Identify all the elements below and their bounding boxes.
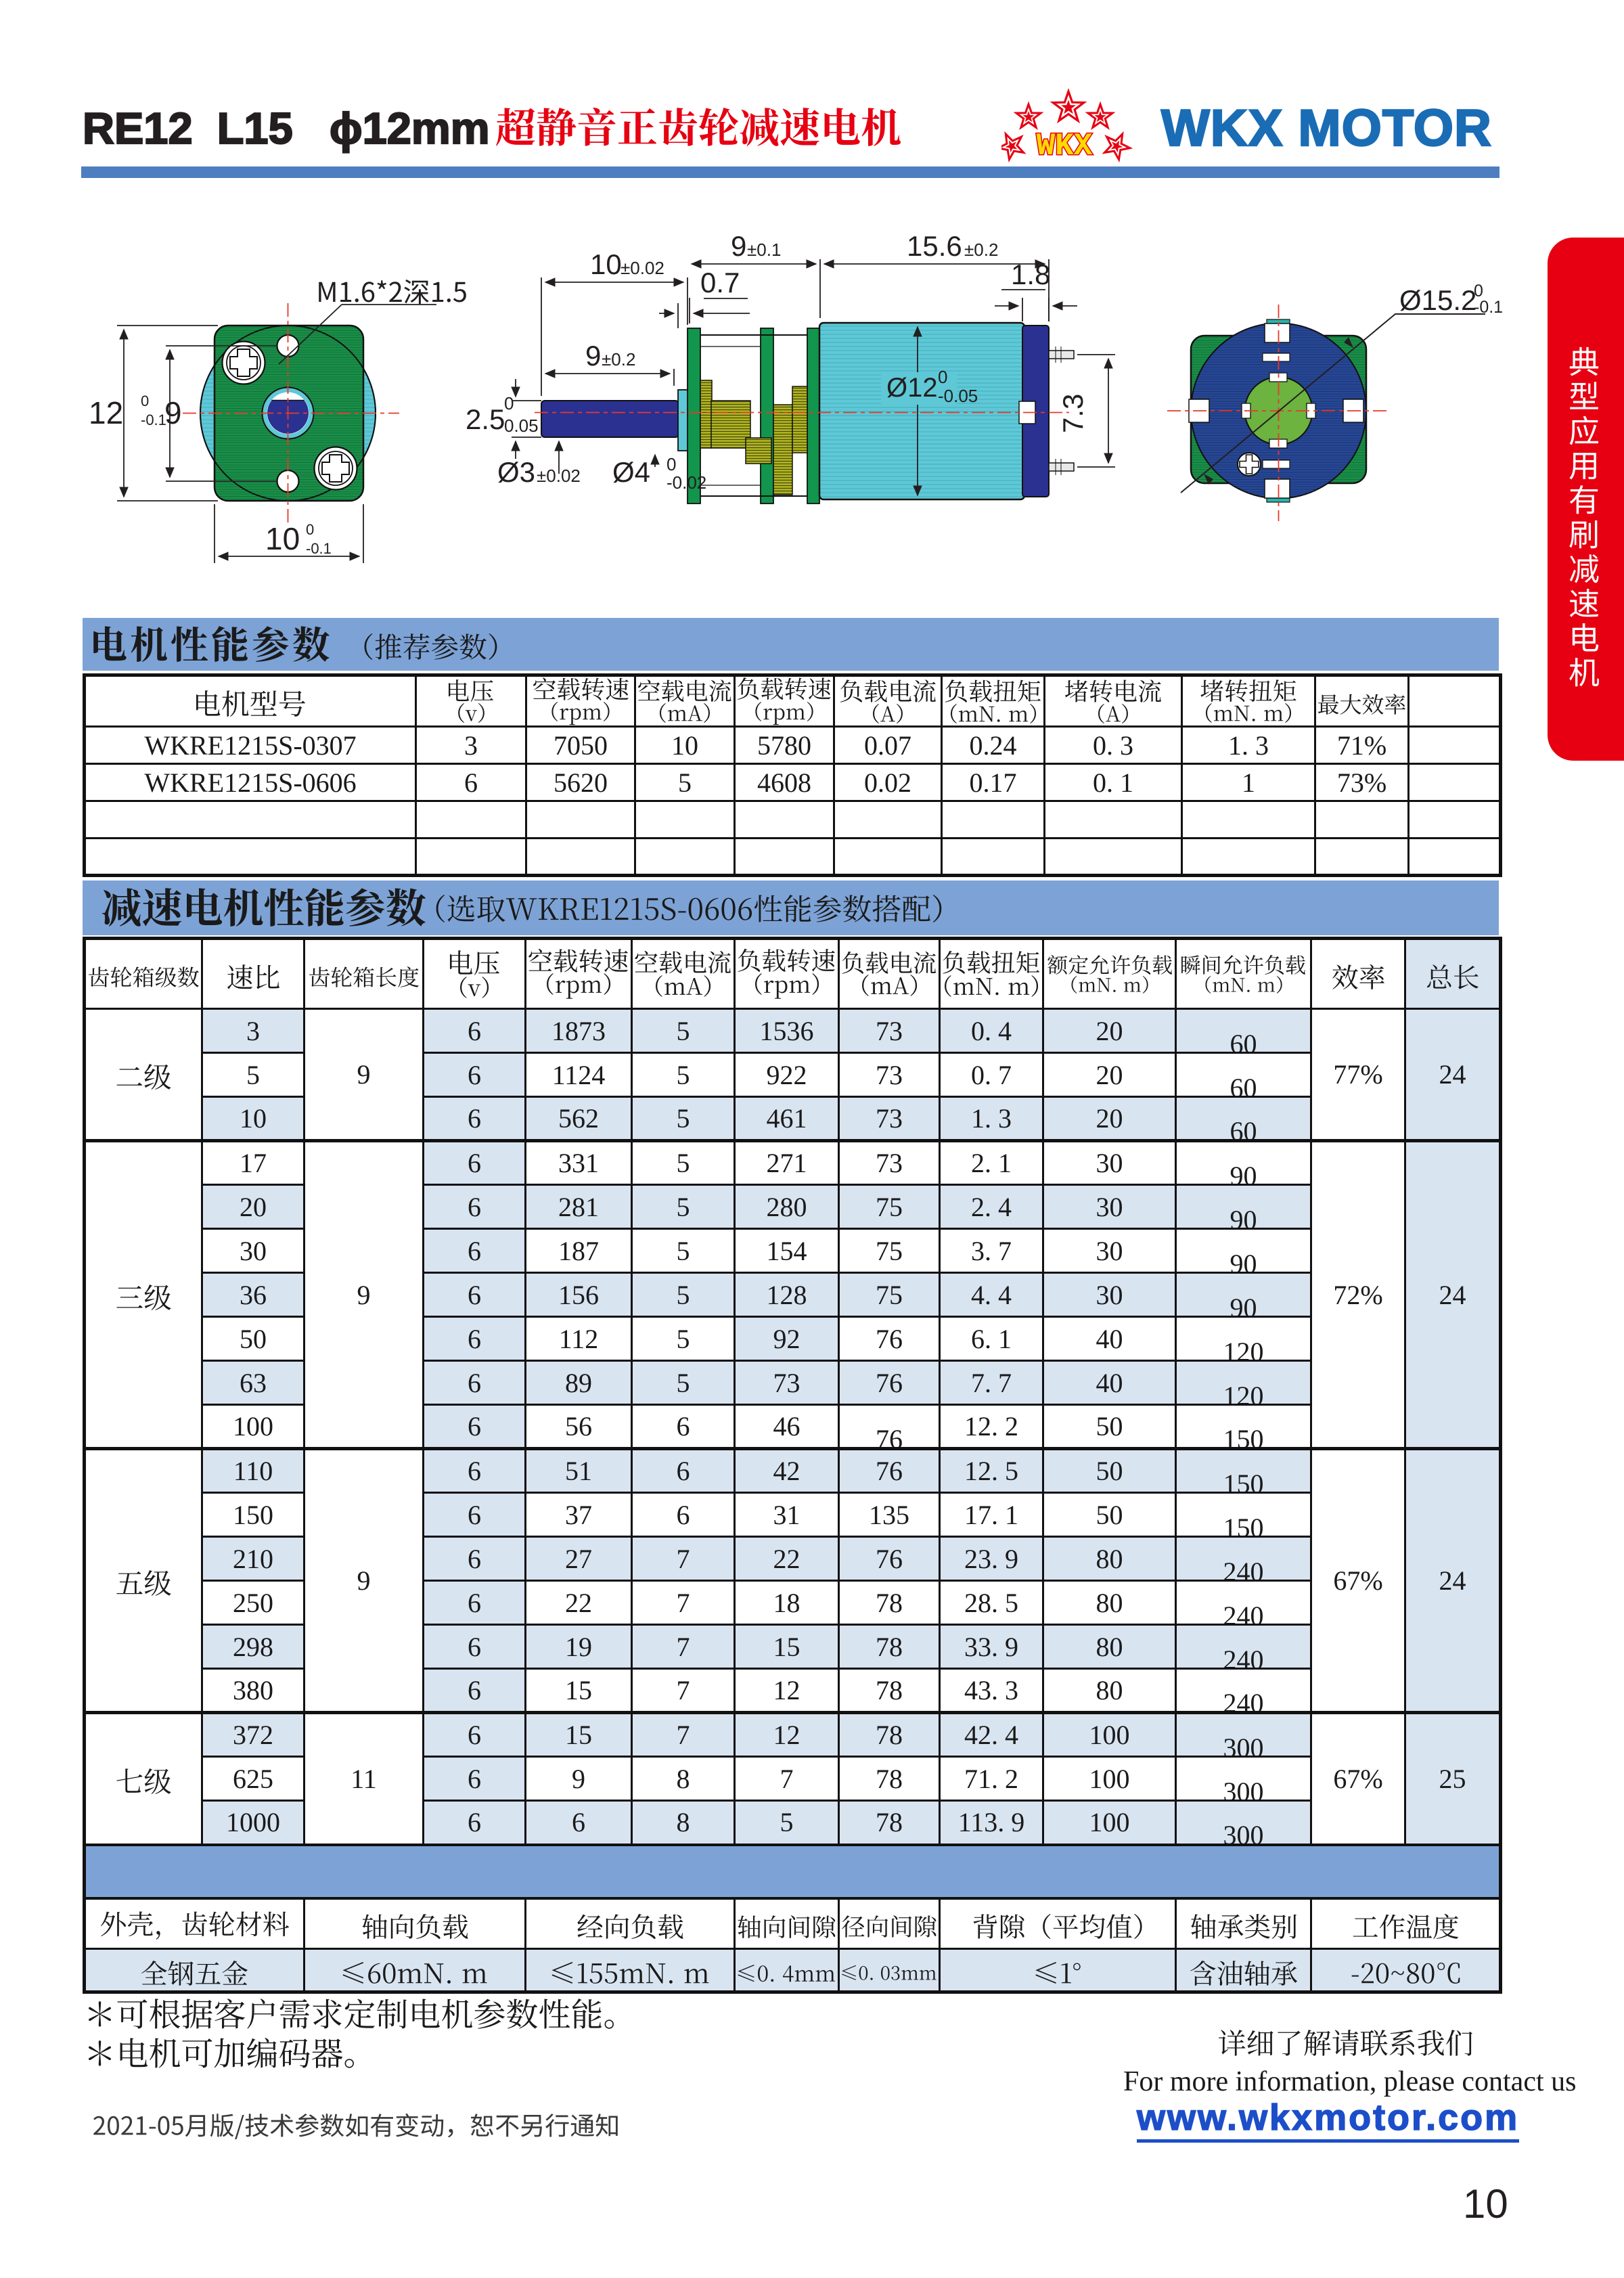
- svg-text:12: 12: [89, 395, 123, 430]
- svg-text:0.7: 0.7: [700, 267, 740, 298]
- svg-text:0: 0: [504, 393, 514, 414]
- svg-text:Ø15.2: Ø15.2: [1399, 284, 1476, 316]
- svg-text:±0.02: ±0.02: [537, 466, 581, 486]
- svg-text:0: 0: [938, 367, 947, 387]
- svg-text:0.05: 0.05: [504, 416, 539, 436]
- svg-text:±0.2: ±0.2: [602, 349, 635, 370]
- svg-text:0: 0: [141, 393, 149, 409]
- svg-text:10: 10: [265, 521, 300, 556]
- svg-text:10: 10: [590, 248, 622, 280]
- svg-text:2.5: 2.5: [466, 403, 505, 435]
- svg-text:Ø3: Ø3: [497, 456, 535, 488]
- svg-text:15.6: 15.6: [907, 230, 962, 262]
- svg-text:±0.1: ±0.1: [747, 240, 781, 260]
- svg-text:±0.02: ±0.02: [621, 258, 664, 278]
- svg-text:-0.1: -0.1: [141, 411, 166, 428]
- svg-text:-0.02: -0.02: [667, 472, 706, 493]
- svg-text:0: 0: [306, 521, 314, 538]
- svg-text:-0.1: -0.1: [1474, 298, 1503, 317]
- svg-text:9: 9: [164, 395, 182, 430]
- svg-text:Ø12: Ø12: [886, 373, 938, 403]
- svg-text:WKX: WKX: [1037, 129, 1093, 164]
- svg-text:7.3: 7.3: [1057, 394, 1089, 433]
- svg-text:-0.1: -0.1: [306, 540, 332, 557]
- svg-text:1.8: 1.8: [1011, 259, 1050, 290]
- svg-text:9: 9: [731, 230, 746, 262]
- svg-text:0: 0: [667, 454, 676, 474]
- svg-text:Ø4: Ø4: [612, 456, 650, 488]
- svg-text:9: 9: [585, 340, 601, 372]
- svg-text:-0.05: -0.05: [938, 386, 978, 406]
- svg-text:±0.2: ±0.2: [964, 240, 998, 260]
